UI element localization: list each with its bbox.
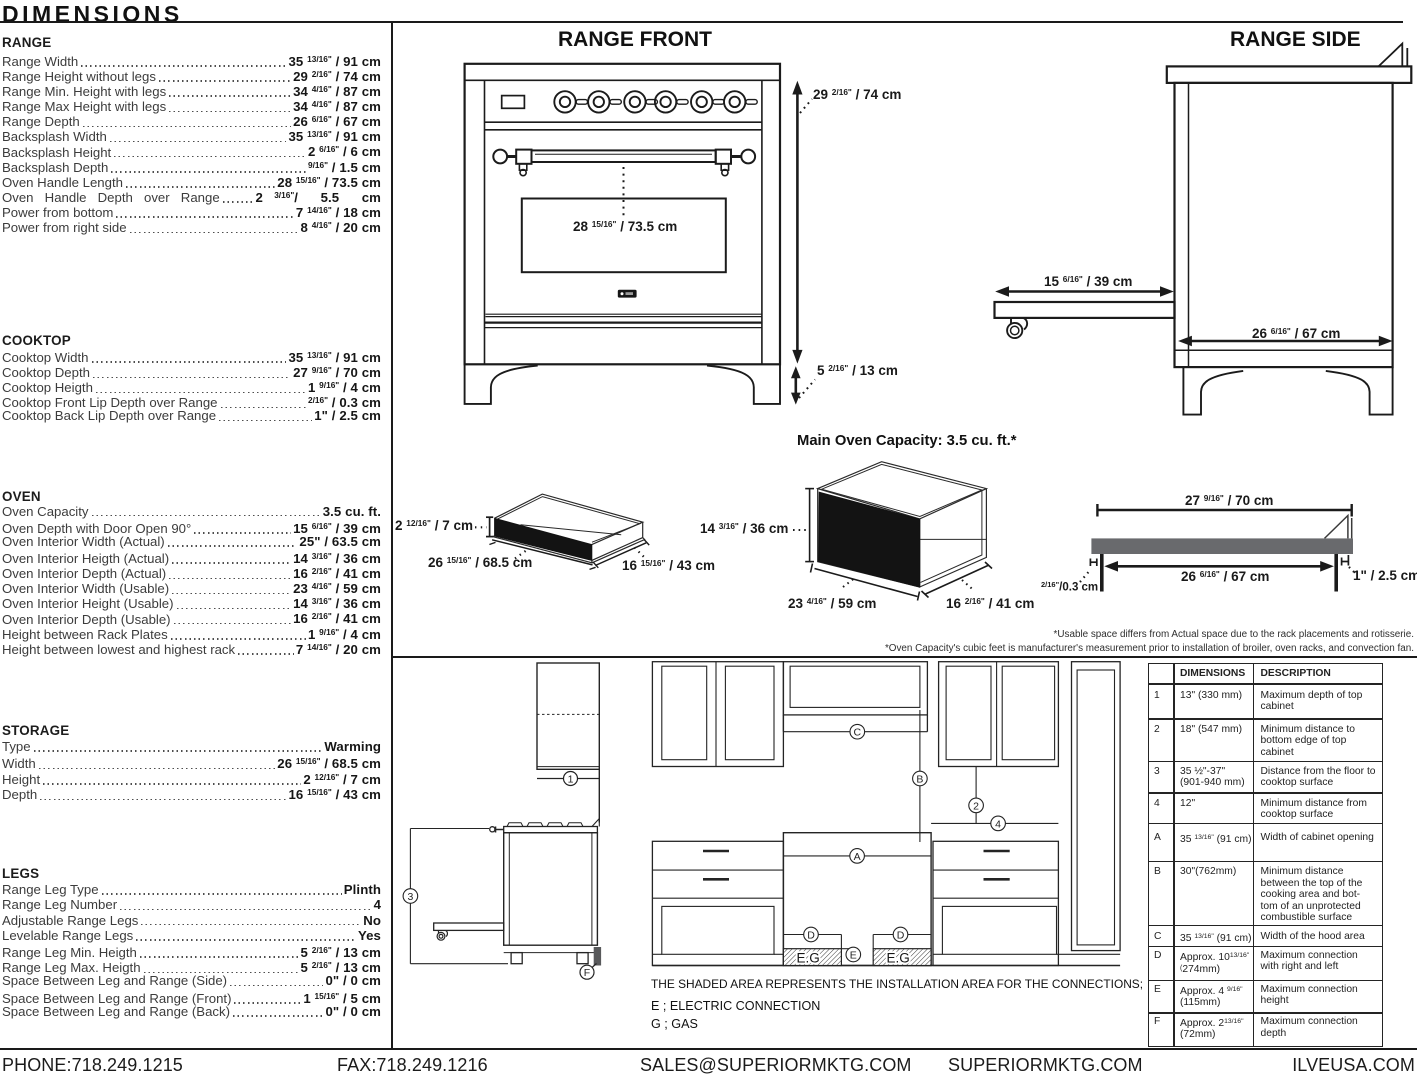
svg-text:E: E <box>850 949 857 961</box>
svg-text:E.G: E.G <box>797 951 820 966</box>
svg-text:B: B <box>916 773 923 785</box>
svg-text:E.G: E.G <box>887 951 910 966</box>
svg-text:3: 3 <box>407 891 413 903</box>
svg-text:A: A <box>854 851 861 863</box>
svg-text:1: 1 <box>568 773 574 785</box>
svg-text:D: D <box>897 929 905 941</box>
svg-text:4: 4 <box>995 818 1001 830</box>
svg-text:F: F <box>584 967 590 979</box>
svg-text:D: D <box>807 929 815 941</box>
svg-text:C: C <box>854 727 862 739</box>
svg-text:2: 2 <box>973 800 979 812</box>
